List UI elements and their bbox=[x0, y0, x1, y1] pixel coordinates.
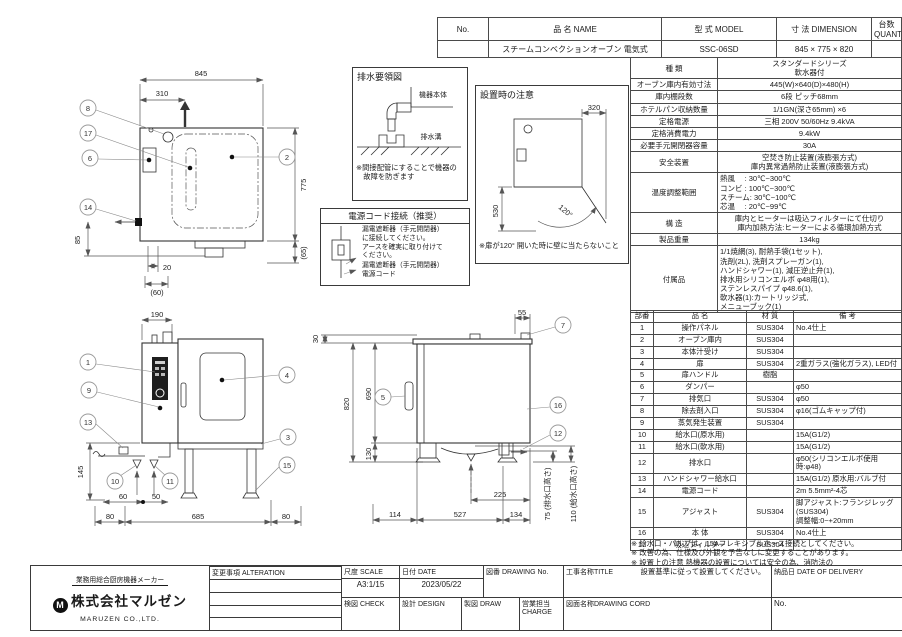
spec-label: 定格電源 bbox=[631, 115, 718, 127]
parts-table-head: 部番 品 名 材 質 備 考 bbox=[631, 311, 902, 323]
part-material: SUS304 bbox=[747, 394, 794, 406]
svg-text:5: 5 bbox=[381, 393, 385, 402]
part-no: 16 bbox=[631, 527, 654, 539]
part-remarks bbox=[794, 346, 902, 358]
part-remarks bbox=[794, 417, 902, 429]
panel-key bbox=[161, 367, 165, 370]
part-remarks: φ16(ゴムキャップ付) bbox=[794, 406, 902, 418]
spec-value: 1/1GN(深さ65mm) ×6 bbox=[718, 103, 902, 115]
part-name: ハンドシャワー給水口 bbox=[654, 474, 747, 486]
part-name: アジャスト bbox=[654, 498, 747, 528]
part-material: SUS304 bbox=[747, 498, 794, 528]
part-no: 13 bbox=[631, 474, 654, 486]
svg-text:8: 8 bbox=[86, 104, 90, 113]
parts-col-material: 材 質 bbox=[747, 311, 794, 323]
drain-outlet bbox=[499, 443, 509, 455]
svg-text:1: 1 bbox=[86, 358, 90, 367]
alteration-row[interactable] bbox=[209, 617, 341, 630]
spec-label: 必要手元開閉器容量 bbox=[631, 139, 718, 151]
dim-55: 55 bbox=[518, 308, 526, 317]
dim-845: 845 bbox=[195, 69, 208, 78]
spec-value: 134kg bbox=[718, 234, 902, 246]
parts-row: 13ハンドシャワー給水口15A(G1/2) 原水用:バルブ付 bbox=[631, 474, 902, 486]
svg-text:12: 12 bbox=[554, 429, 562, 438]
part-no: 9 bbox=[631, 417, 654, 429]
part-remarks bbox=[794, 370, 902, 382]
part-remarks: No.4仕上 bbox=[794, 527, 902, 539]
oven-body-top bbox=[140, 128, 263, 241]
part-name: ダンパー bbox=[654, 382, 747, 394]
parts-row: 10給水口(原水用)15A(G1/2) bbox=[631, 429, 902, 441]
svg-text:10: 10 bbox=[111, 477, 119, 486]
parts-row: 6ダンパーφ50 bbox=[631, 382, 902, 394]
part-name: 電源コード bbox=[654, 486, 747, 498]
adjust-foot bbox=[243, 493, 259, 498]
cell-dimension: 845 × 775 × 820 bbox=[777, 41, 872, 58]
angle-120: 120° bbox=[557, 203, 575, 220]
dim-60-paren: (60) bbox=[150, 288, 164, 297]
header-table-head: No. 品 名 NAME 型 式 MODEL 寸 法 DIMENSION 台数 … bbox=[438, 18, 902, 41]
cell-quantity bbox=[872, 41, 902, 58]
svg-text:14: 14 bbox=[84, 203, 92, 212]
balloon-16: 16 bbox=[527, 397, 566, 413]
breaker-label: 漏電遮断器（手元開閉器） bbox=[362, 262, 444, 271]
scale-label: 尺度 SCALE bbox=[341, 566, 399, 578]
svg-text:17: 17 bbox=[84, 129, 92, 138]
part-material: SUS304 bbox=[747, 346, 794, 358]
col-quantity: 台数 QUANTITY bbox=[872, 18, 902, 41]
spec-value: 空焚き防止装置(液膨張方式) 庫内異常過熱防止装置(液膨張方式) bbox=[718, 152, 902, 173]
part-remarks: 15A(G1/2) bbox=[794, 429, 902, 441]
draw-cell[interactable]: 製図 DRAW bbox=[461, 597, 519, 630]
parts-row: 16本 体SUS304No.4仕上 bbox=[631, 527, 902, 539]
panel-key bbox=[161, 373, 165, 376]
balloon-11: 11 bbox=[155, 466, 178, 489]
dim-50: 50 bbox=[152, 492, 160, 501]
dim-114: 114 bbox=[389, 510, 401, 519]
cell-product-name: スチームコンベクションオーブン 電気式 bbox=[489, 41, 662, 58]
cell-model: SSC-06SD bbox=[662, 41, 777, 58]
part-remarks: φ50 bbox=[794, 382, 902, 394]
oven-body-side bbox=[417, 344, 530, 443]
oven-body-front bbox=[178, 339, 263, 443]
leader-dot bbox=[188, 166, 193, 171]
parts-table: 部番 品 名 材 質 備 考 1操作パネルSUS304No.4仕上2オーブン庫内… bbox=[630, 310, 902, 551]
breaker-diagram bbox=[324, 226, 358, 280]
parts-row: 5扉ハンドル樹脂 bbox=[631, 370, 902, 382]
part-name: 扉ハンドル bbox=[654, 370, 747, 382]
parts-row: 4扉SUS3042重ガラス(強化ガラス), LED付 bbox=[631, 358, 902, 370]
top-plate bbox=[413, 339, 532, 344]
pipe-horizontal bbox=[397, 103, 411, 112]
adjust-foot bbox=[181, 493, 197, 498]
company-name: M株式会社マルゼン bbox=[31, 590, 209, 613]
dim-20: 20 bbox=[163, 263, 171, 272]
spec-row: 構 造庫内とヒーターは吸込フィルターにて仕切り 庫内加熱方法:ヒーターによる循環… bbox=[631, 212, 902, 233]
spec-value: 熱風 : 30℃~300℃ コンビ : 100℃~300℃ スチーム: 30℃~… bbox=[718, 173, 902, 213]
part-material: 樹脂 bbox=[747, 370, 794, 382]
power-instruction: 漏電遮断器（手元開閉器） に接続してください。 アースを確実に取り付けて くださ… bbox=[362, 226, 444, 261]
spec-value: 1/1焼網(3), 耐熱手袋(1セット), 洗剤(2L), 洗剤スプレーガン(1… bbox=[718, 246, 902, 313]
balloon-3: 3 bbox=[261, 429, 296, 445]
dim-820: 820 bbox=[342, 398, 351, 411]
installation-caution-box: 設置時の注意 320 530 120° ※扉が120° 開いた時に壁に当たらない… bbox=[475, 85, 629, 264]
spec-row: 安全装置空焚き防止装置(液膨張方式) 庫内異常過熱防止装置(液膨張方式) bbox=[631, 152, 902, 173]
part-no: 3 bbox=[631, 346, 654, 358]
part-material bbox=[747, 441, 794, 453]
side-leg-rear bbox=[502, 443, 513, 458]
spec-table: 種 類スタンダードシリーズ 軟水器付オーブン庫内有効寸法445(W)×640(D… bbox=[630, 57, 902, 313]
parts-row: 12排水口φ50(シリコンエルボ使用時:φ48) bbox=[631, 453, 902, 474]
part-no: 6 bbox=[631, 382, 654, 394]
installation-diagram: 320 530 120° bbox=[476, 101, 626, 239]
dim-685: 685 bbox=[192, 512, 205, 521]
part-no: 1 bbox=[631, 322, 654, 334]
breaker-symbol bbox=[332, 240, 350, 260]
dim-30: 30 bbox=[311, 335, 320, 343]
drain-box-title: 排水要領図 bbox=[353, 68, 467, 83]
part-no: 7 bbox=[631, 394, 654, 406]
company-block: 業務用総合厨房機器メーカー M株式会社マルゼン MARUZEN CO.,LTD. bbox=[31, 566, 209, 630]
drain-ditch bbox=[379, 135, 404, 147]
spec-label: 温度調整範囲 bbox=[631, 173, 718, 213]
machine-body-label: 機器本体 bbox=[419, 90, 447, 99]
panel-display bbox=[155, 361, 165, 364]
dim-85: 85 bbox=[73, 236, 82, 244]
dim-320: 320 bbox=[588, 103, 601, 112]
door-handle-side bbox=[405, 382, 413, 410]
parts-row: 7排気口SUS304φ50 bbox=[631, 394, 902, 406]
date-label: 日付 DATE bbox=[399, 566, 483, 578]
part-name: 排水口 bbox=[654, 453, 747, 474]
front-leg-left bbox=[185, 449, 193, 493]
exhaust-stub bbox=[521, 333, 530, 339]
spec-label: 定格消費電力 bbox=[631, 127, 718, 139]
front-view-drawing: 190 145 60 50 80 685 80 bbox=[75, 310, 325, 575]
svg-text:6: 6 bbox=[88, 154, 92, 163]
parts-row: 2オーブン庫内SUS304 bbox=[631, 334, 902, 346]
part-material: SUS304 bbox=[747, 417, 794, 429]
part-material: SUS304 bbox=[747, 406, 794, 418]
spec-row: 製品重量134kg bbox=[631, 234, 902, 246]
part-remarks: φ50(シリコンエルボ使用時:φ48) bbox=[794, 453, 902, 474]
part-material: SUS304 bbox=[747, 334, 794, 346]
col-dimension: 寸 法 DIMENSION bbox=[777, 18, 872, 41]
spec-value: 30A bbox=[718, 139, 902, 151]
side-leg-front bbox=[420, 443, 436, 458]
adjust-foot bbox=[498, 458, 517, 462]
spec-label: 種 類 bbox=[631, 58, 718, 79]
part-name: 操作パネル bbox=[654, 322, 747, 334]
maruzen-logo-icon: M bbox=[53, 598, 68, 613]
parts-col-remarks: 備 考 bbox=[794, 311, 902, 323]
part-no: 2 bbox=[631, 334, 654, 346]
part-no: 12 bbox=[631, 453, 654, 474]
charge-cell[interactable]: 営業担当CHARGE bbox=[519, 597, 563, 630]
parts-row: 8除去剤入口SUS304φ16(ゴムキャップ付) bbox=[631, 406, 902, 418]
balloon-15: 15 bbox=[255, 457, 295, 491]
inlet-funnel bbox=[467, 454, 475, 461]
floor-hatching bbox=[361, 147, 449, 155]
drain-box-note: ※間接配管にすることで機器の 故障を防ぎます bbox=[353, 163, 467, 181]
part-no: 5 bbox=[631, 370, 654, 382]
part-no: 10 bbox=[631, 429, 654, 441]
top-view-drawing: 845 310 775 (65) 85 20 (60) 8 17 6 14 2 bbox=[55, 60, 345, 310]
rear-fitting bbox=[195, 241, 245, 248]
dim-80-right: 80 bbox=[282, 512, 290, 521]
part-material bbox=[747, 474, 794, 486]
power-cord-box: 電源コード接続（推奨） 漏電遮断器（手元開閉器） に接続してください。 アースを… bbox=[320, 208, 470, 286]
part-name: 本 体 bbox=[654, 527, 747, 539]
install-box-note: ※扉が120° 開いた時に壁に当たらないこと bbox=[476, 241, 628, 250]
spec-value: 9.4kW bbox=[718, 127, 902, 139]
part-name: オーブン庫内 bbox=[654, 334, 747, 346]
spec-row: ホテルパン収納数量1/1GN(深さ65mm) ×6 bbox=[631, 103, 902, 115]
cell-no bbox=[438, 41, 489, 58]
cord-pointer bbox=[344, 270, 356, 274]
dim-110-inlet-height: 110 (給水口高さ) bbox=[568, 465, 578, 522]
part-no: 14 bbox=[631, 486, 654, 498]
cord-label: 電源コード bbox=[362, 271, 444, 280]
part-remarks: 脚アジャスト:フランジレッグ(SUS304) 調整幅:0~+20mm bbox=[794, 498, 902, 528]
dim-80-left: 80 bbox=[106, 512, 114, 521]
part-no: 8 bbox=[631, 406, 654, 418]
spec-value: 庫内とヒーターは吸込フィルターにて仕切り 庫内加熱方法:ヒーターによる循環加熱方… bbox=[718, 212, 902, 233]
scale-value: A3:1/15 bbox=[341, 578, 399, 597]
dim-690: 690 bbox=[364, 388, 373, 401]
spec-row: 定格電源三相 200V 50/60Hz 9.4kVA bbox=[631, 115, 902, 127]
part-material: SUS304 bbox=[747, 527, 794, 539]
spec-label: オーブン庫内有効寸法 bbox=[631, 79, 718, 91]
part-remarks: φ50 bbox=[794, 394, 902, 406]
drain-diagram: 機器本体 排水溝 bbox=[353, 83, 465, 161]
drawing-sheet: No. 品 名 NAME 型 式 MODEL 寸 法 DIMENSION 台数 … bbox=[0, 0, 902, 637]
delivery-no-cell: No. bbox=[771, 597, 902, 630]
spec-value: 445(W)×640(D)×480(H) bbox=[718, 79, 902, 91]
svg-text:4: 4 bbox=[285, 371, 289, 380]
damper-port bbox=[524, 125, 532, 133]
adjust-foot bbox=[416, 458, 440, 462]
part-remarks: 15A(G1/2) bbox=[794, 441, 902, 453]
part-no: 15 bbox=[631, 498, 654, 528]
alteration-row[interactable] bbox=[209, 579, 341, 592]
dim-527: 527 bbox=[454, 510, 467, 519]
leader-dot bbox=[158, 406, 163, 411]
parts-row: 11給水口(軟水用)15A(G1/2) bbox=[631, 441, 902, 453]
drawing-no-label: 図番 DRAWING No. bbox=[483, 566, 563, 597]
balloon-10: 10 bbox=[107, 466, 135, 489]
dim-145: 145 bbox=[76, 466, 85, 479]
dim-775: 775 bbox=[299, 179, 308, 192]
svg-text:13: 13 bbox=[84, 418, 92, 427]
drain-ditch-label: 排水溝 bbox=[421, 132, 442, 141]
spec-label: 安全装置 bbox=[631, 152, 718, 173]
part-name: 除去剤入口 bbox=[654, 406, 747, 418]
part-material bbox=[747, 429, 794, 441]
svg-text:11: 11 bbox=[166, 477, 174, 486]
svg-text:3: 3 bbox=[286, 433, 290, 442]
power-box-title: 電源コード接続（推奨） bbox=[321, 209, 469, 224]
door-open-line bbox=[582, 187, 606, 223]
spec-row: 庫内棚段数6段 ピッチ68mm bbox=[631, 91, 902, 103]
check-cell[interactable]: 検図 CHECK bbox=[341, 597, 399, 630]
pipe-vertical bbox=[388, 119, 395, 131]
company-name-en: MARUZEN CO.,LTD. bbox=[31, 616, 209, 623]
balloon-5: 5 bbox=[375, 389, 405, 405]
part-name: 給水口(原水用) bbox=[654, 429, 747, 441]
part-name: 蒸気発生装置 bbox=[654, 417, 747, 429]
base-rail bbox=[178, 443, 263, 449]
panel-key bbox=[155, 373, 159, 376]
breaker-pointer bbox=[346, 258, 356, 264]
drain-fitting bbox=[205, 248, 223, 257]
col-name: 品 名 NAME bbox=[489, 18, 662, 41]
spec-label: 庫内棚段数 bbox=[631, 91, 718, 103]
top-stub bbox=[470, 334, 480, 339]
drain-pipe bbox=[441, 448, 498, 454]
balloon-6: 6 bbox=[82, 150, 147, 166]
project-title-label: 工事名称TITLE bbox=[563, 566, 771, 597]
spec-label: 付属品 bbox=[631, 246, 718, 313]
part-name: 排気口 bbox=[654, 394, 747, 406]
panel-key bbox=[155, 367, 159, 370]
side-view-drawing: 30 820 690 130 55 225 114 527 134 75 (排水… bbox=[313, 308, 618, 573]
spec-value: 6段 ピッチ68mm bbox=[718, 91, 902, 103]
part-material bbox=[747, 486, 794, 498]
part-material: SUS304 bbox=[747, 322, 794, 334]
date-value: 2023/05/22 bbox=[399, 578, 483, 597]
parts-row: 9蒸気発生装置SUS304 bbox=[631, 417, 902, 429]
spec-row: オーブン庫内有効寸法445(W)×640(D)×480(H) bbox=[631, 79, 902, 91]
dim-134: 134 bbox=[510, 510, 523, 519]
dim-310: 310 bbox=[156, 89, 169, 98]
svg-text:15: 15 bbox=[283, 461, 291, 470]
part-remarks: 2m 5.5mm²-4芯 bbox=[794, 486, 902, 498]
part-remarks: No.4仕上 bbox=[794, 322, 902, 334]
maker-tagline: 業務用総合厨房機器メーカー bbox=[72, 574, 168, 586]
spec-value: スタンダードシリーズ 軟水器付 bbox=[718, 58, 902, 79]
part-material: SUS304 bbox=[747, 358, 794, 370]
col-no: No. bbox=[438, 18, 489, 41]
part-name: 本体汁受け bbox=[654, 346, 747, 358]
spec-row: 温度調整範囲熱風 : 30℃~300℃ コンビ : 100℃~300℃ スチーム… bbox=[631, 173, 902, 213]
header-table-row: スチームコンベクションオーブン 電気式 SSC-06SD 845 × 775 ×… bbox=[438, 41, 902, 58]
part-remarks: 15A(G1/2) 原水用:バルブ付 bbox=[794, 474, 902, 486]
leader-dot bbox=[220, 378, 225, 383]
spec-row: 定格消費電力9.4kW bbox=[631, 127, 902, 139]
dim-75-drain-height: 75 (排水口高さ) bbox=[542, 467, 552, 520]
part-name: 給水口(軟水用) bbox=[654, 441, 747, 453]
alteration-row[interactable] bbox=[209, 605, 341, 617]
panel-outline bbox=[517, 149, 526, 161]
alteration-header: 変更事項 ALTERATION bbox=[209, 566, 341, 579]
damper-stub bbox=[163, 332, 172, 343]
part-remarks: 2重ガラス(強化ガラス), LED付 bbox=[794, 358, 902, 370]
parts-row: 3本体汁受けSUS304 bbox=[631, 346, 902, 358]
spec-row: 種 類スタンダードシリーズ 軟水器付 bbox=[631, 58, 902, 79]
header-table: No. 品 名 NAME 型 式 MODEL 寸 法 DIMENSION 台数 … bbox=[437, 17, 902, 58]
col-model: 型 式 MODEL bbox=[662, 18, 777, 41]
dim-65: (65) bbox=[299, 246, 308, 260]
delivery-date-label: 納品日 DATE OF DELIVERY bbox=[771, 566, 902, 597]
drain-procedure-box: 排水要領図 機器本体 排水溝 ※間接配管にすることで機器の 故障を防ぎます bbox=[352, 67, 468, 201]
part-name: 扉 bbox=[654, 358, 747, 370]
title-block: 業務用総合厨房機器メーカー M株式会社マルゼン MARUZEN CO.,LTD.… bbox=[30, 565, 902, 631]
spec-row: 付属品1/1焼網(3), 耐熱手袋(1セット), 洗剤(2L), 洗剤スプレーガ… bbox=[631, 246, 902, 313]
parts-col-no: 部番 bbox=[631, 311, 654, 323]
top-stub bbox=[152, 335, 157, 343]
pipe-elbow bbox=[387, 103, 397, 119]
spec-label: 構 造 bbox=[631, 212, 718, 233]
spec-label: 製品重量 bbox=[631, 234, 718, 246]
drawing-name-cell: 図面名称DRAWING CORD bbox=[563, 597, 771, 630]
part-remarks bbox=[794, 334, 902, 346]
spec-row: 必要手元開閉器容量30A bbox=[631, 139, 902, 151]
spec-value: 三相 200V 50/60Hz 9.4kVA bbox=[718, 115, 902, 127]
breaker-switch bbox=[338, 245, 344, 255]
part-no: 11 bbox=[631, 441, 654, 453]
part-material bbox=[747, 453, 794, 474]
parts-row: 15アジャストSUS304脚アジャスト:フランジレッグ(SUS304) 調整幅:… bbox=[631, 498, 902, 528]
part-material bbox=[747, 382, 794, 394]
dim-225: 225 bbox=[494, 490, 507, 499]
cord-outlet bbox=[135, 218, 142, 226]
install-box-title: 設置時の注意 bbox=[476, 86, 628, 101]
exhaust-arrow-icon bbox=[180, 101, 190, 127]
svg-text:2: 2 bbox=[285, 153, 289, 162]
dim-130: 130 bbox=[364, 448, 373, 461]
dim-190: 190 bbox=[151, 310, 164, 319]
spec-label: ホテルパン収納数量 bbox=[631, 103, 718, 115]
part-no: 4 bbox=[631, 358, 654, 370]
parts-row: 1操作パネルSUS304No.4仕上 bbox=[631, 322, 902, 334]
dim-dot bbox=[141, 500, 145, 504]
leader-dot bbox=[147, 158, 152, 163]
parts-col-name: 品 名 bbox=[654, 311, 747, 323]
balloon-14: 14 bbox=[80, 199, 136, 221]
design-cell[interactable]: 設計 DESIGN bbox=[399, 597, 461, 630]
parts-row: 14電源コード2m 5.5mm²-4芯 bbox=[631, 486, 902, 498]
leader-dot bbox=[230, 155, 235, 160]
svg-text:16: 16 bbox=[554, 401, 562, 410]
svg-text:7: 7 bbox=[561, 321, 565, 330]
alteration-row[interactable] bbox=[209, 592, 341, 605]
front-leg-right bbox=[247, 449, 256, 493]
dim-530: 530 bbox=[491, 205, 500, 218]
dim-60: 60 bbox=[119, 492, 127, 501]
balloon-7: 7 bbox=[527, 317, 571, 335]
svg-text:9: 9 bbox=[87, 386, 91, 395]
